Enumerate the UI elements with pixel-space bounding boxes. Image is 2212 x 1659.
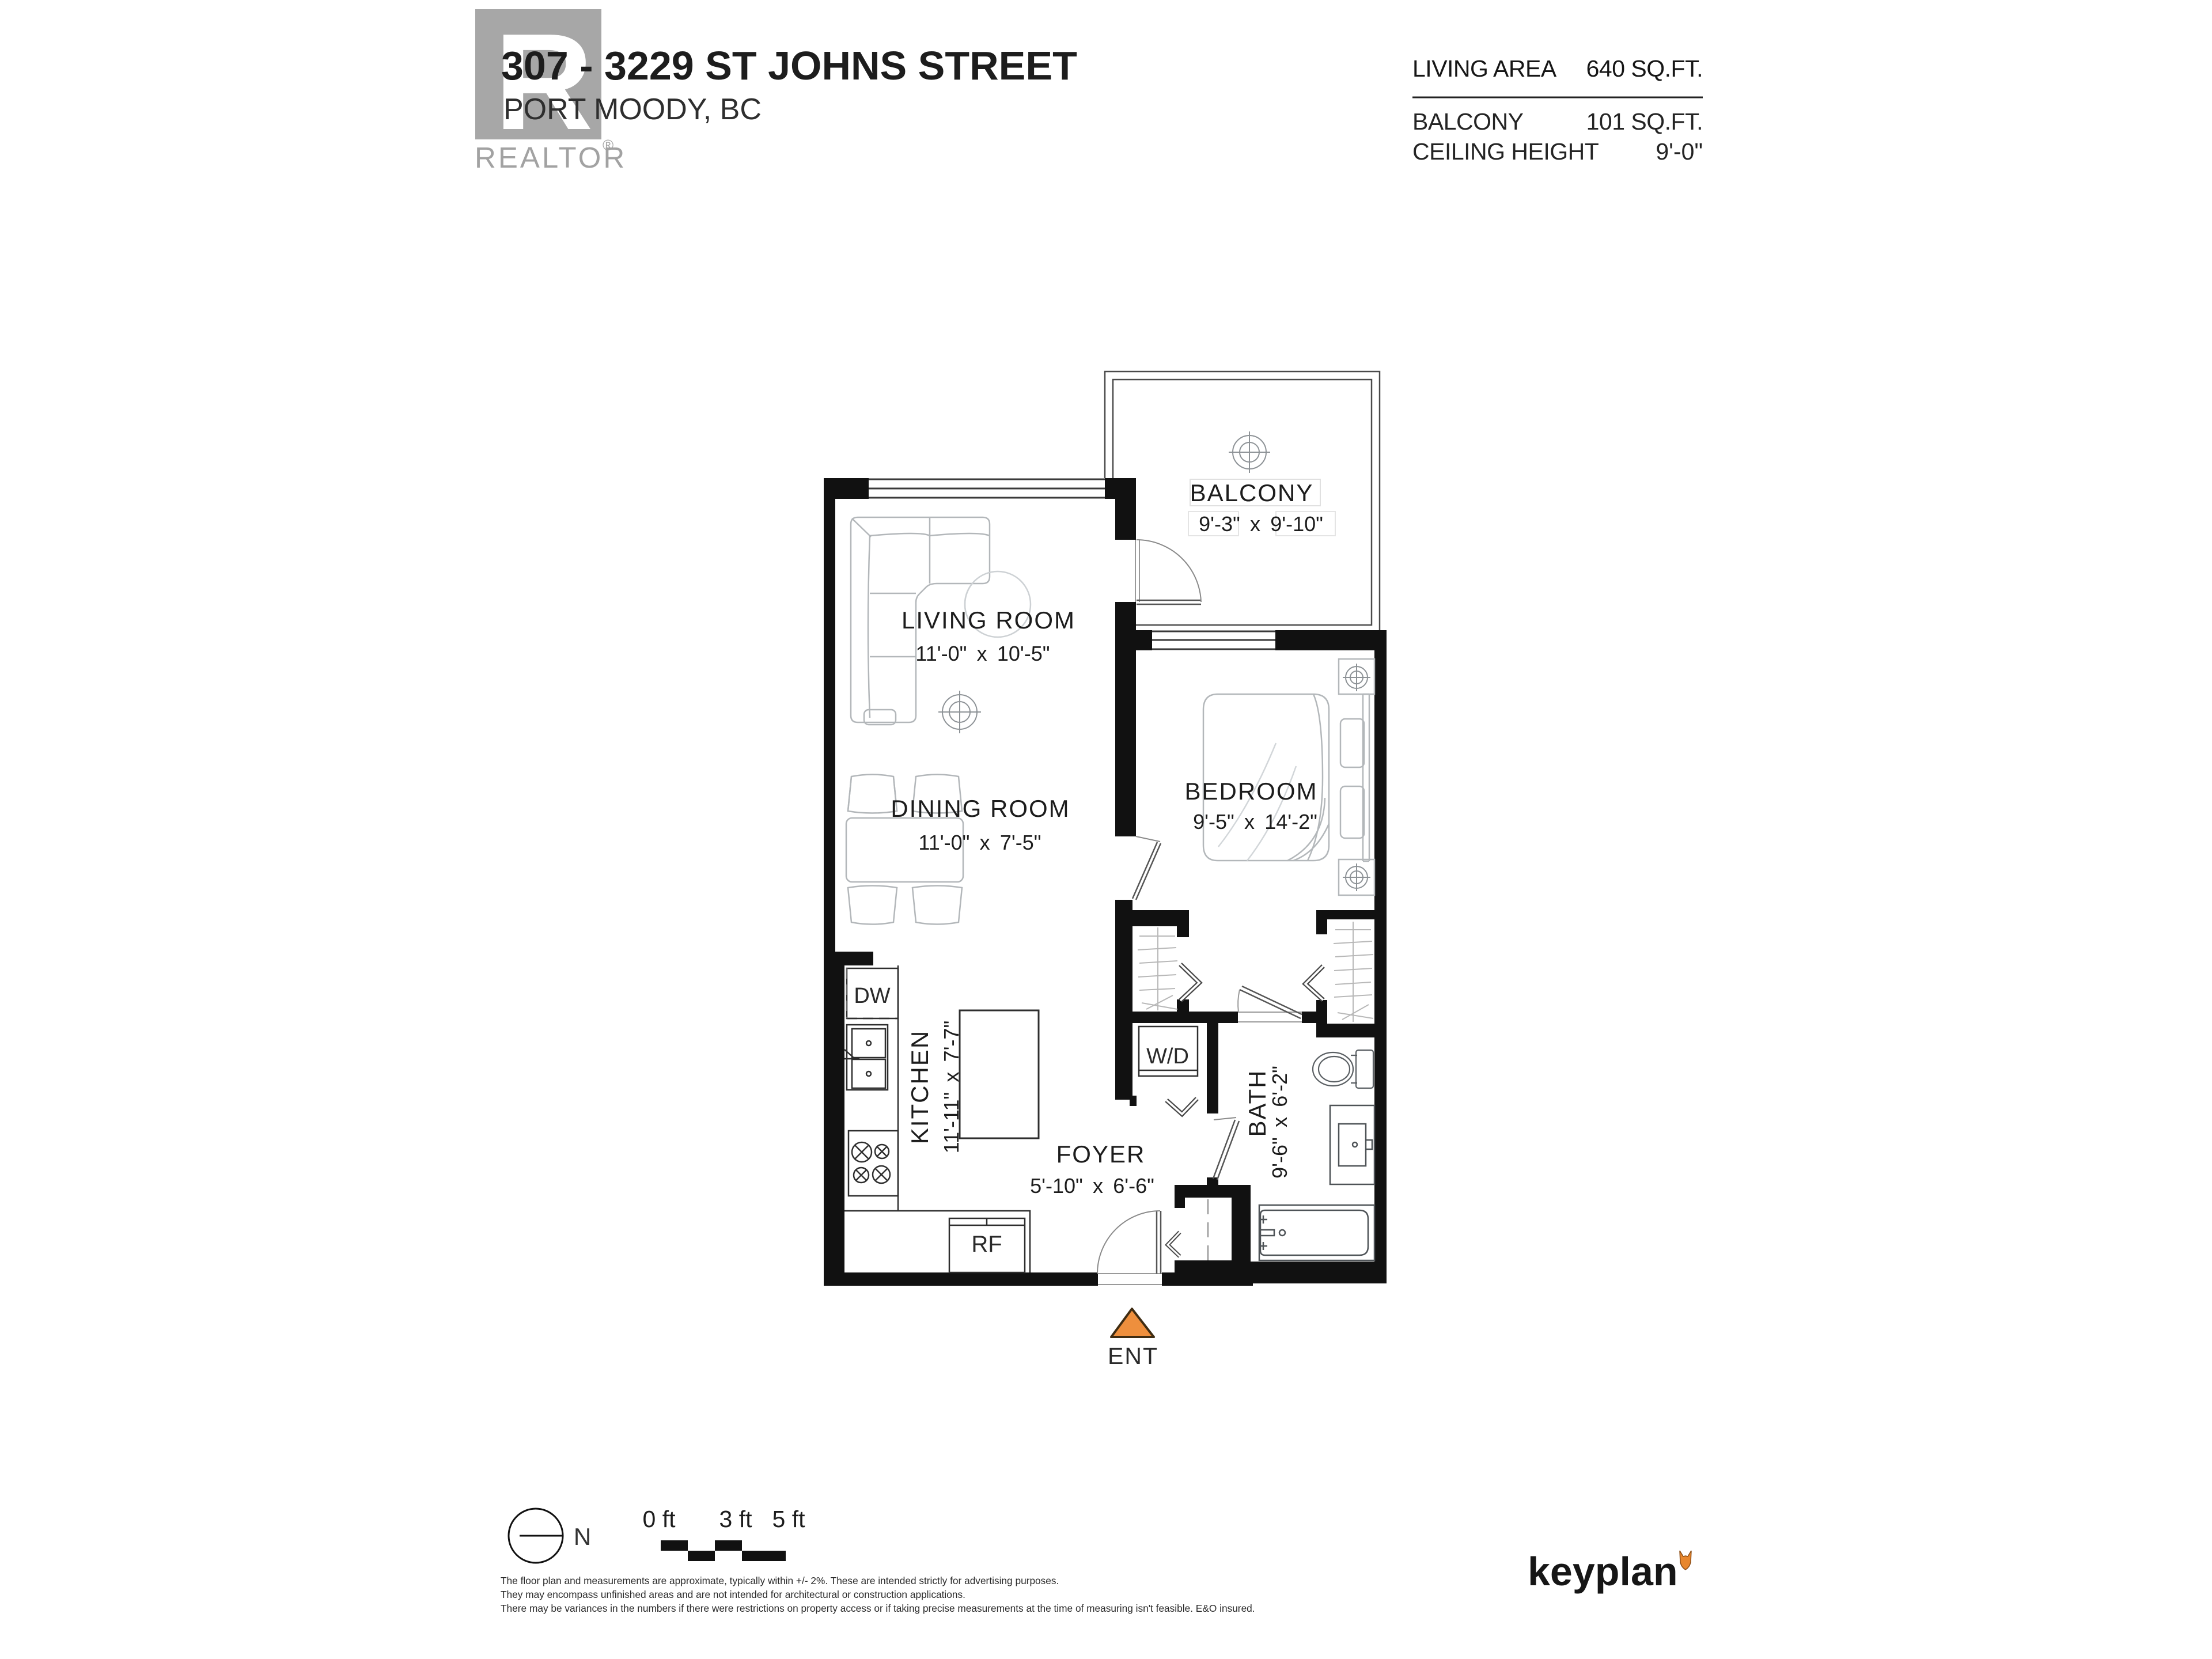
svg-text:11'-0" x 7'-5": 11'-0" x 7'-5" [918, 831, 1041, 854]
svg-text:LIVING ROOM: LIVING ROOM [902, 607, 1075, 634]
svg-text:There may be variances in the: There may be variances in the numbers if… [501, 1603, 1255, 1614]
svg-text:9'-5" x 14'-2": 9'-5" x 14'-2" [1193, 810, 1317, 834]
svg-text:11'-0" x 10'-5": 11'-0" x 10'-5" [915, 642, 1050, 665]
svg-text:They may encompass unfinished: They may encompass unfinished areas and … [501, 1589, 965, 1600]
svg-text:DINING ROOM: DINING ROOM [891, 795, 1070, 822]
svg-text:3 ft: 3 ft [719, 1506, 753, 1532]
svg-text:0 ft: 0 ft [643, 1506, 676, 1532]
svg-text:BATH: BATH [1244, 1070, 1271, 1137]
svg-text:DW: DW [854, 984, 890, 1008]
svg-text:11'-11" x 7'-7": 11'-11" x 7'-7" [940, 1021, 963, 1153]
svg-text:FOYER: FOYER [1056, 1141, 1146, 1168]
svg-text:5 ft: 5 ft [772, 1506, 806, 1532]
svg-text:N: N [574, 1523, 591, 1550]
svg-text:5'-10" x 6'-6": 5'-10" x 6'-6" [1030, 1174, 1154, 1198]
svg-text:ENT: ENT [1108, 1343, 1158, 1369]
svg-text:LIVING AREA: LIVING AREA [1412, 55, 1557, 82]
svg-text:W/D: W/D [1146, 1044, 1189, 1069]
svg-text:101 SQ.FT.: 101 SQ.FT. [1586, 108, 1703, 135]
svg-text:KITCHEN: KITCHEN [906, 1030, 933, 1144]
svg-text:PORT MOODY, BC: PORT MOODY, BC [503, 93, 762, 126]
svg-text:9'-6" x 6'-2": 9'-6" x 6'-2" [1268, 1066, 1291, 1179]
svg-text:®: ® [603, 137, 613, 154]
svg-text:RF: RF [971, 1232, 1002, 1257]
svg-text:BALCONY: BALCONY [1190, 479, 1314, 506]
svg-text:keyplan: keyplan [1528, 1549, 1678, 1594]
svg-text:BALCONY: BALCONY [1412, 108, 1524, 135]
svg-text:307 - 3229 ST JOHNS STREET: 307 - 3229 ST JOHNS STREET [501, 43, 1077, 88]
svg-text:CEILING HEIGHT: CEILING HEIGHT [1412, 138, 1599, 165]
svg-text:640 SQ.FT.: 640 SQ.FT. [1586, 55, 1703, 82]
svg-text:9'-3" x 9'-10": 9'-3" x 9'-10" [1199, 512, 1323, 536]
svg-text:The floor plan and measurement: The floor plan and measurements are appr… [501, 1575, 1059, 1586]
svg-text:9'-0": 9'-0" [1656, 138, 1703, 165]
svg-text:BEDROOM: BEDROOM [1184, 778, 1317, 805]
